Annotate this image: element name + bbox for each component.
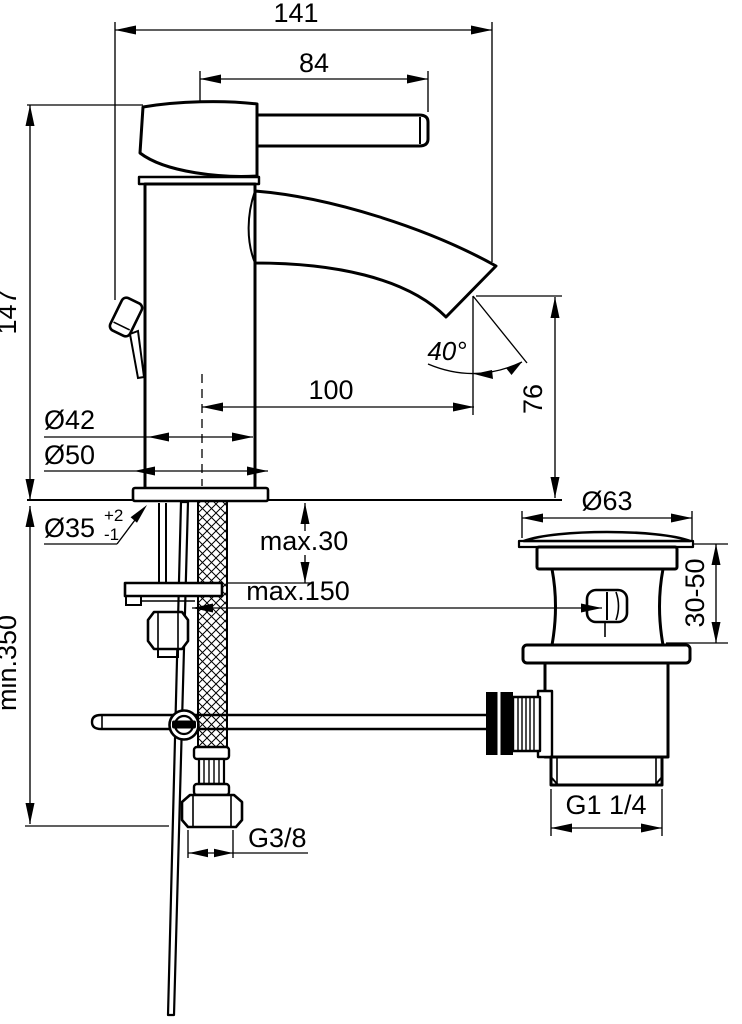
- plug-dome: [524, 532, 690, 541]
- label-hole-tol-plus: +2: [104, 506, 123, 525]
- hose-collar-lower: [194, 784, 229, 795]
- waste-bottom-thread: [551, 757, 662, 785]
- popup-waste-drawing: [486, 532, 693, 785]
- label-spout-angle: 40°: [427, 336, 466, 366]
- faucet-dimension-drawing: 141 84 147 40° 100 76 Ø42 Ø50 Ø35 +2 -1 …: [0, 0, 742, 1024]
- base-escutcheon: [133, 488, 268, 501]
- label-waste-body-range: 30-50: [680, 558, 710, 627]
- label-spout-reach: 100: [308, 375, 353, 405]
- label-base-diameter: Ø50: [44, 440, 95, 470]
- mounting-stud: [159, 503, 166, 583]
- faucet-body: [145, 184, 255, 489]
- braided-supply-hose: [198, 502, 227, 747]
- label-handle-length: 84: [299, 48, 329, 78]
- waste-flange-lower: [523, 645, 690, 663]
- label-hole-tol-minus: -1: [104, 525, 119, 544]
- label-body-diameter: Ø42: [44, 405, 95, 435]
- label-supply-thread: G3/8: [248, 823, 307, 853]
- hose-ribbed-section: [199, 759, 224, 784]
- label-min-hose-length: min.350: [0, 615, 22, 711]
- rod-clamp-slot: [172, 721, 196, 729]
- bracket-hook: [126, 596, 141, 605]
- label-spout-height: 76: [518, 384, 548, 414]
- supply-connection-nut: [182, 795, 242, 827]
- mounting-bracket: [125, 583, 222, 596]
- mounting-nut: [148, 612, 188, 649]
- label-total-depth: 141: [273, 0, 318, 28]
- waste-flange-upper: [537, 547, 677, 569]
- label-body-height: 147: [0, 289, 22, 334]
- pullrod-knob-stem: [130, 331, 144, 378]
- hose-collar-upper: [194, 747, 229, 759]
- popup-lift-rod: [168, 502, 188, 1015]
- technical-drawing-canvas: 141 84 147 40° 100 76 Ø42 Ø50 Ø35 +2 -1 …: [0, 0, 742, 1024]
- label-max-deck-thickness: max.30: [260, 526, 349, 556]
- label-hole-diameter: Ø35: [44, 513, 95, 543]
- spout: [255, 191, 496, 317]
- faucet-body-drawing: [108, 102, 496, 501]
- popup-horizontal-rod: [92, 715, 488, 729]
- label-waste-flange-diameter: Ø63: [581, 486, 632, 516]
- label-max-waste-distance: max.150: [246, 576, 350, 606]
- label-waste-thread: G1 1/4: [565, 790, 646, 820]
- handle-head: [140, 102, 257, 177]
- handle-lever: [257, 115, 428, 146]
- waste-tailpiece: [545, 663, 668, 757]
